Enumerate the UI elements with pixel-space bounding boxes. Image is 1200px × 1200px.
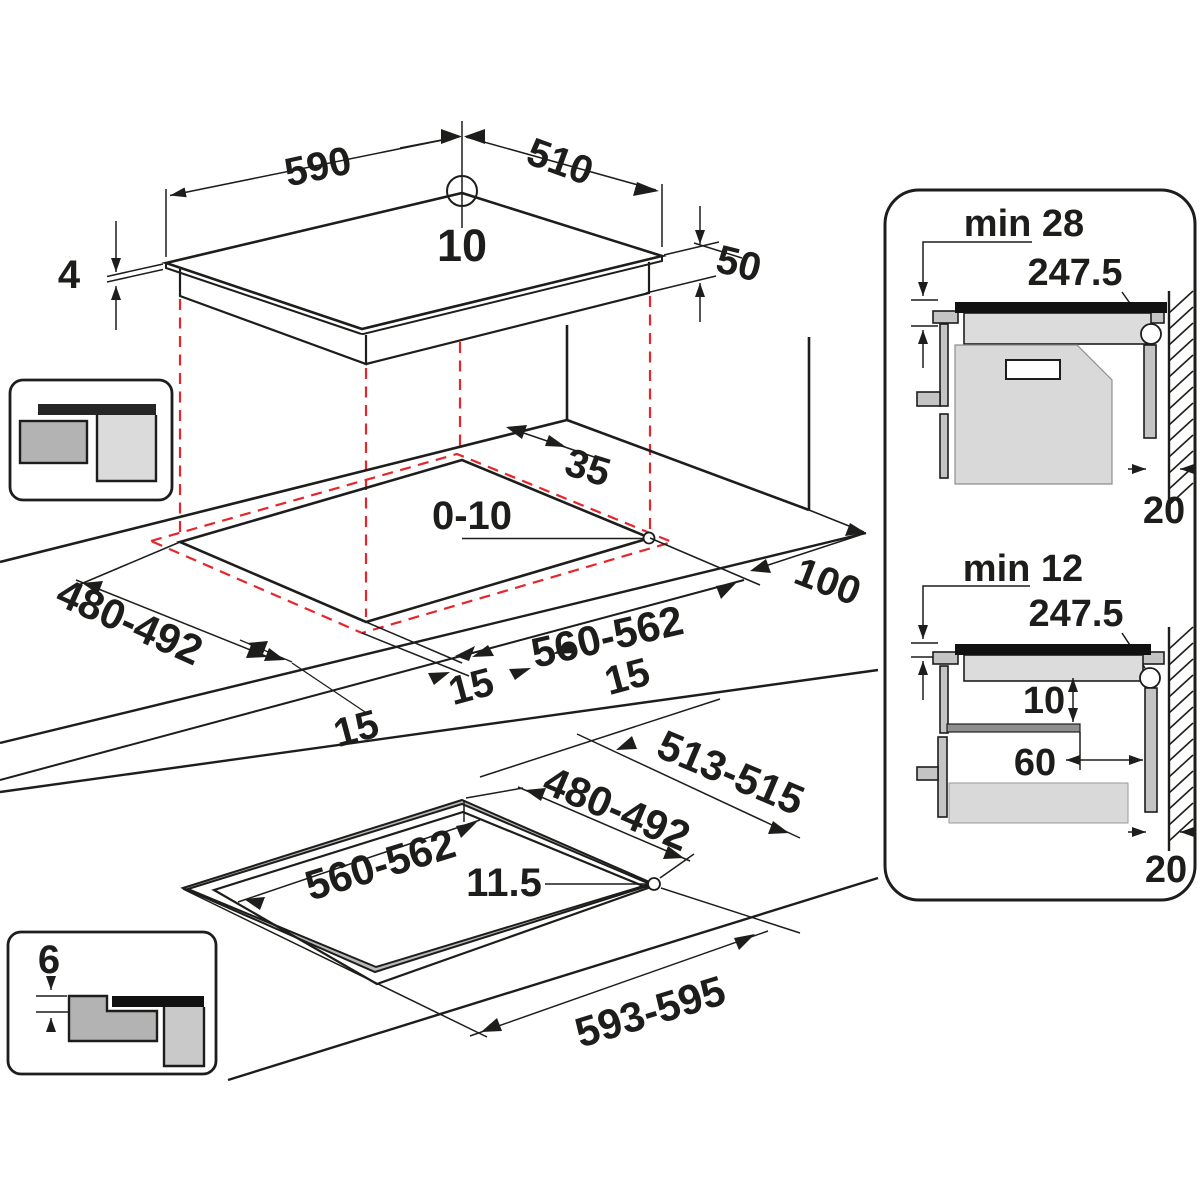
svg-text:min 12: min 12 bbox=[963, 548, 1083, 590]
svg-text:247.5: 247.5 bbox=[1028, 593, 1123, 635]
svg-text:560-562: 560-562 bbox=[300, 819, 461, 909]
svg-text:11.5: 11.5 bbox=[466, 861, 542, 905]
svg-text:60: 60 bbox=[1014, 742, 1056, 784]
svg-text:20: 20 bbox=[1143, 490, 1185, 532]
svg-text:50: 50 bbox=[712, 237, 766, 290]
svg-text:10: 10 bbox=[1023, 680, 1065, 722]
svg-text:10: 10 bbox=[437, 220, 487, 271]
svg-text:510: 510 bbox=[521, 130, 599, 194]
svg-text:480-492: 480-492 bbox=[50, 569, 210, 675]
svg-text:15: 15 bbox=[329, 702, 383, 756]
svg-text:4: 4 bbox=[58, 253, 81, 297]
svg-text:593-595: 593-595 bbox=[570, 966, 731, 1056]
svg-text:100: 100 bbox=[789, 549, 867, 614]
svg-text:6: 6 bbox=[38, 938, 60, 982]
svg-text:15: 15 bbox=[444, 660, 498, 714]
svg-text:min 28: min 28 bbox=[964, 203, 1084, 245]
svg-text:247.5: 247.5 bbox=[1027, 252, 1122, 294]
svg-text:590: 590 bbox=[281, 139, 355, 196]
svg-text:20: 20 bbox=[1145, 849, 1187, 891]
svg-text:0-10: 0-10 bbox=[432, 494, 512, 538]
